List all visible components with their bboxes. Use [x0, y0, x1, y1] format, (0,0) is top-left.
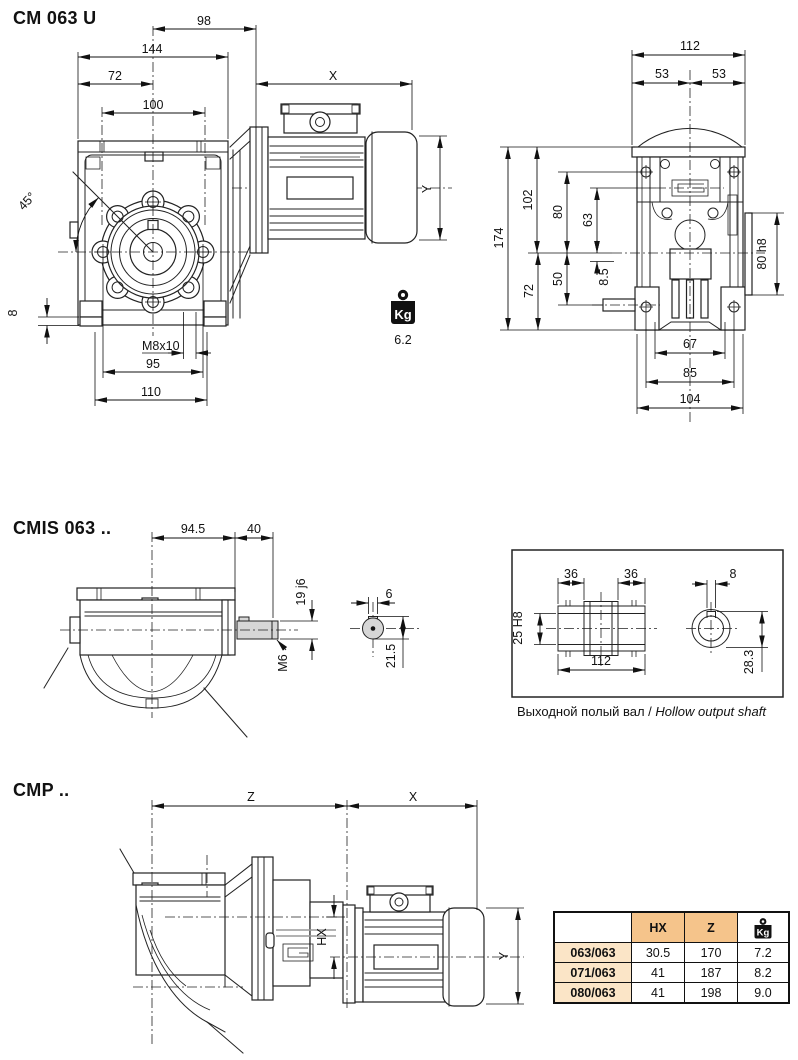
dim-94-5: 94.5	[181, 522, 205, 536]
dim-45deg: 45°	[16, 190, 39, 213]
dim-40: 40	[247, 522, 261, 536]
model-cell: 071/063	[554, 963, 632, 983]
cmis-shaft-end-view: 6 21.5	[350, 587, 420, 668]
caption-english: Hollow output shaft	[655, 704, 766, 719]
cmp-dimensions-table: HX Z Kg 063/063 30.5 170 7.2 071/063 41 …	[553, 911, 790, 1004]
dim-144: 144	[142, 42, 163, 56]
weight-badge: Kg 6.2	[386, 288, 420, 347]
kg-cell: 7.2	[738, 943, 790, 963]
table-col-z: Z	[685, 912, 738, 943]
z-cell: 198	[685, 983, 738, 1004]
table-col-kg: Kg	[738, 912, 790, 943]
dim-50: 50	[551, 272, 565, 286]
model-cell: 080/063	[554, 983, 632, 1004]
dim-110: 110	[141, 385, 161, 399]
z-cell: 187	[685, 963, 738, 983]
weight-icon-label: Kg	[394, 307, 411, 322]
weight-value: 6.2	[386, 333, 420, 347]
table-col-hx: HX	[632, 912, 685, 943]
dim-m8x10: M8x10	[142, 339, 180, 353]
dim-hx: HX	[315, 928, 329, 946]
table-row: 063/063 30.5 170 7.2	[554, 943, 789, 963]
dim-21-5: 21.5	[384, 644, 398, 668]
dim-8: 8	[6, 309, 20, 316]
dim-y: Y	[420, 184, 434, 193]
hx-cell: 41	[632, 963, 685, 983]
dim-112: 112	[680, 39, 700, 53]
weight-icon-small: Kg	[750, 917, 776, 939]
dim-8-key: 8	[730, 567, 737, 581]
dim-80h8: 80 h8	[755, 238, 769, 269]
model-cell: 063/063	[554, 943, 632, 963]
dim-95: 95	[146, 357, 160, 371]
dim-174: 174	[492, 228, 506, 249]
dim-36-right: 36	[624, 567, 638, 581]
dim-104: 104	[680, 392, 701, 406]
dim-28-3: 28.3	[742, 650, 756, 674]
dim-100: 100	[143, 98, 164, 112]
weight-icon-small-label: Kg	[757, 927, 770, 938]
dim-x-cmp: X	[409, 790, 418, 804]
dim-80: 80	[551, 205, 565, 219]
z-cell: 170	[685, 943, 738, 963]
dim-112-hollow: 112	[591, 654, 611, 668]
cmp-drawing-linework	[120, 800, 524, 1053]
hollow-shaft-caption: Выходной полый вал / Hollow output shaft	[517, 704, 766, 719]
dim-98: 98	[197, 14, 211, 28]
technical-drawings: 98 144 72 100 X 45° Y 8 M8x10 95 110	[0, 0, 798, 1060]
caption-russian: Выходной полый вал	[517, 704, 645, 719]
table-col-model	[554, 912, 632, 943]
dim-25h8: 25 H8	[511, 611, 525, 644]
table-header-row: HX Z Kg	[554, 912, 789, 943]
dim-53-right: 53	[712, 67, 726, 81]
table-row: 071/063 41 187 8.2	[554, 963, 789, 983]
dim-85: 85	[683, 366, 697, 380]
dim-63: 63	[581, 213, 595, 227]
hollow-shaft-box: 36 36 25 H8 112 8 28.3	[511, 550, 783, 697]
hx-cell: 30.5	[632, 943, 685, 963]
cmis-side-view-linework	[44, 532, 298, 737]
dim-8-5: 8.5	[597, 268, 611, 285]
caption-separator: /	[645, 704, 656, 719]
dim-19j6: 19 j6	[294, 578, 308, 605]
dim-67: 67	[683, 337, 697, 351]
dim-72: 72	[108, 69, 122, 83]
weight-icon: Kg	[386, 288, 420, 328]
dim-y-cmp: Y	[497, 951, 511, 960]
dim-z: Z	[247, 790, 255, 804]
cm063u-side-view-linework	[592, 70, 765, 424]
dim-102: 102	[521, 190, 535, 211]
dim-6: 6	[386, 587, 393, 601]
dim-36-left: 36	[564, 567, 578, 581]
dim-72b: 72	[522, 284, 536, 298]
dim-m6: M6	[276, 654, 290, 671]
dim-x: X	[329, 69, 338, 83]
hx-cell: 41	[632, 983, 685, 1004]
kg-cell: 8.2	[738, 963, 790, 983]
kg-cell: 9.0	[738, 983, 790, 1004]
dim-53-left: 53	[655, 67, 669, 81]
table-row: 080/063 41 198 9.0	[554, 983, 789, 1004]
